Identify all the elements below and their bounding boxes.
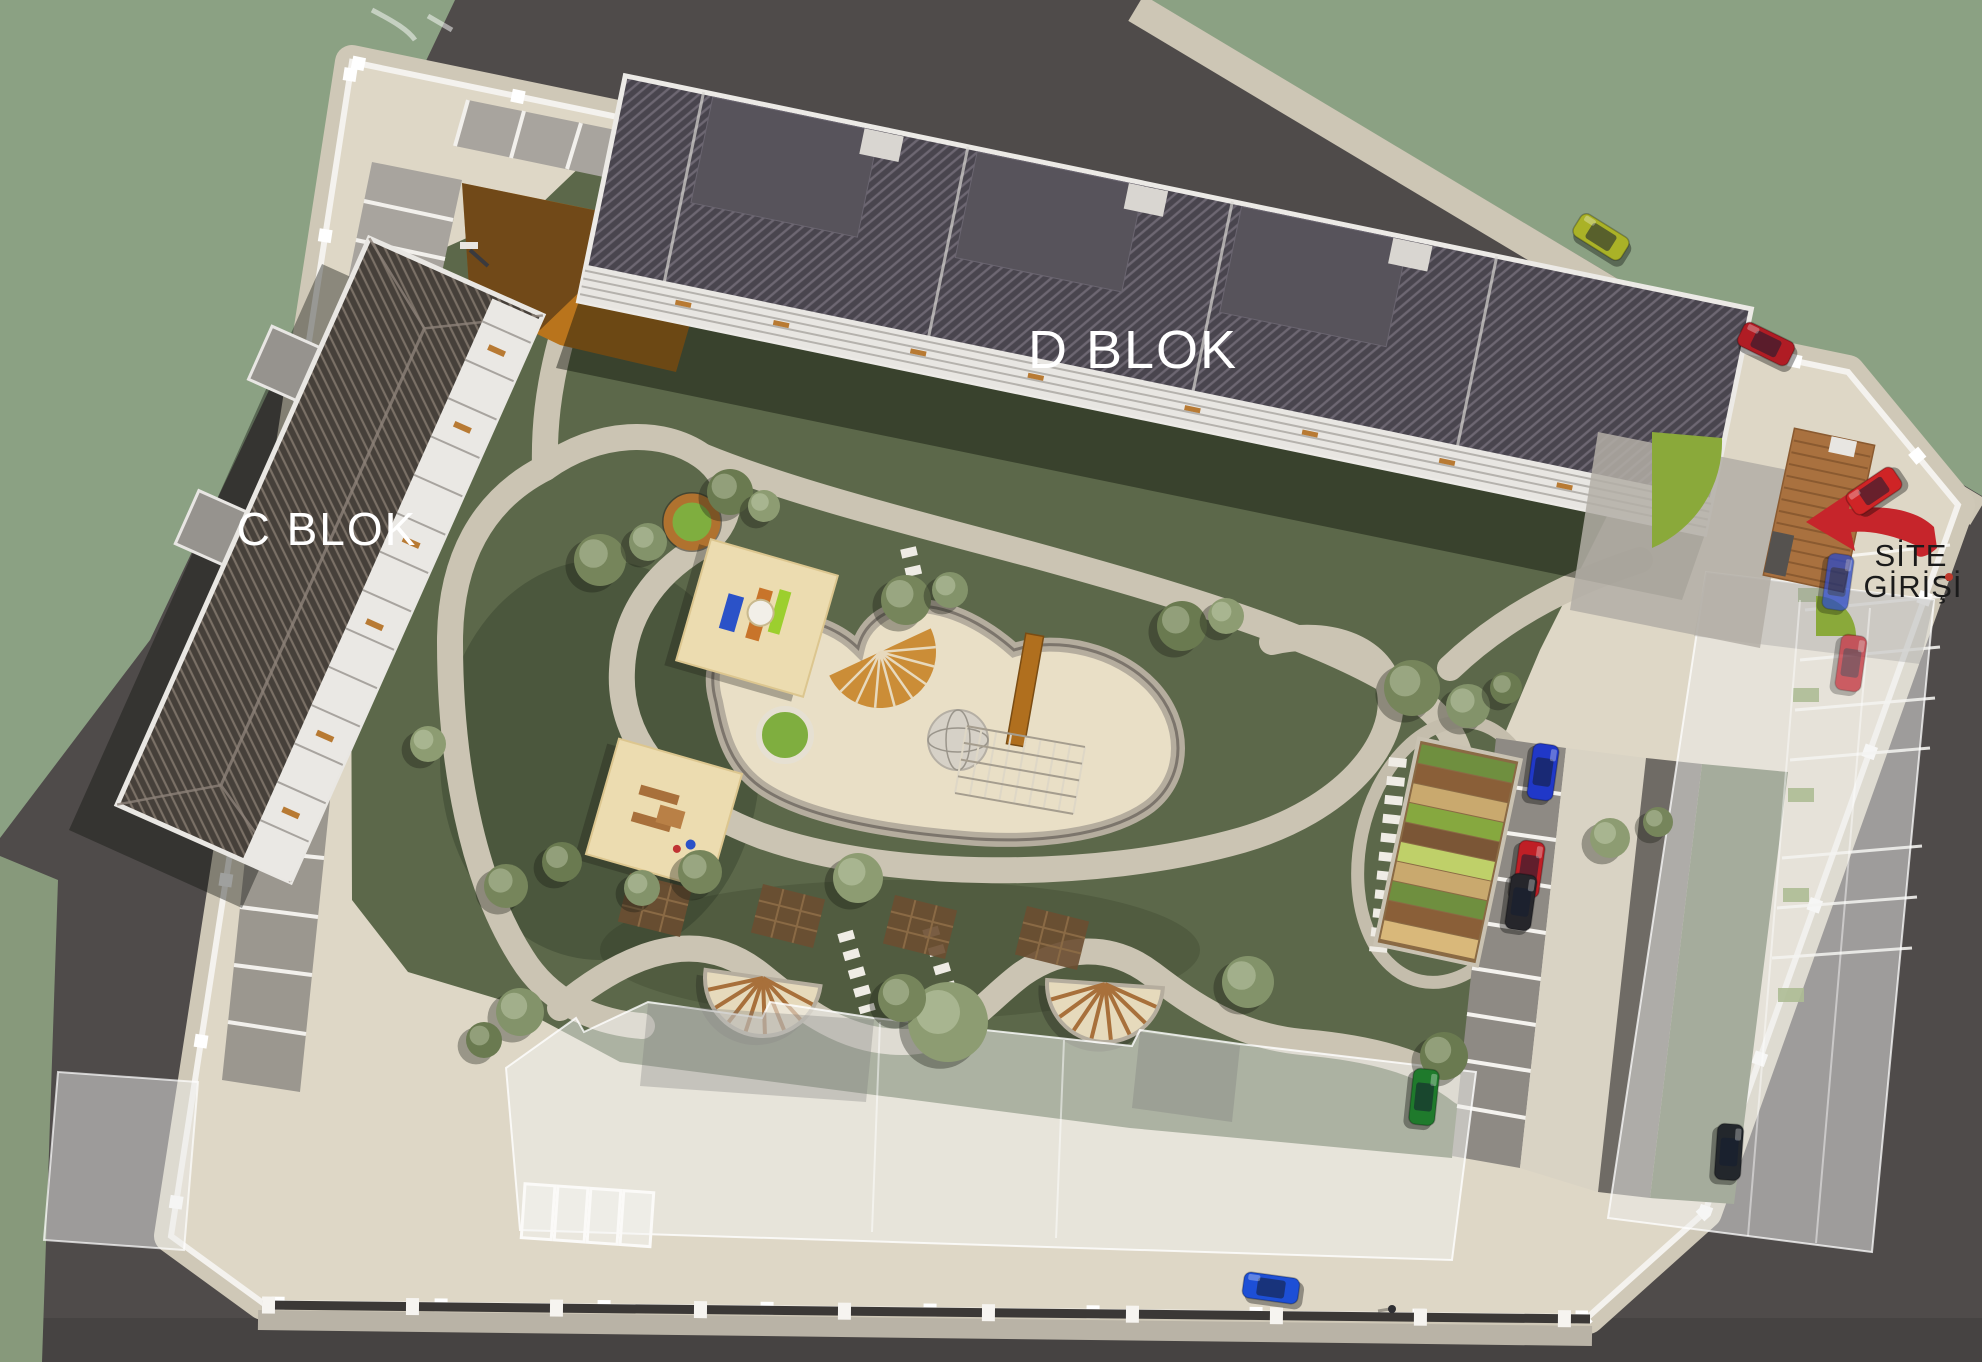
ghost-roof-face	[640, 1004, 874, 1102]
glass-fence	[521, 1184, 653, 1247]
d-blok-label: D BLOK	[1028, 320, 1238, 380]
walkway-gate	[545, 344, 560, 468]
grass-mound	[759, 709, 811, 761]
site-plan-render: SİTE GİRİŞİ C BLOK D BLOK	[0, 0, 1982, 1362]
car	[1709, 1123, 1744, 1186]
hoop-backboard	[460, 242, 478, 249]
ghost-building-left	[44, 1072, 198, 1250]
c-blok-label: C BLOK	[237, 503, 418, 555]
ghost-roof-face	[1132, 1032, 1240, 1122]
car	[1403, 1067, 1440, 1131]
site-plan-svg: SİTE GİRİŞİ C BLOK D BLOK	[0, 0, 1982, 1362]
entrance-label-line1: SİTE	[1875, 538, 1948, 573]
